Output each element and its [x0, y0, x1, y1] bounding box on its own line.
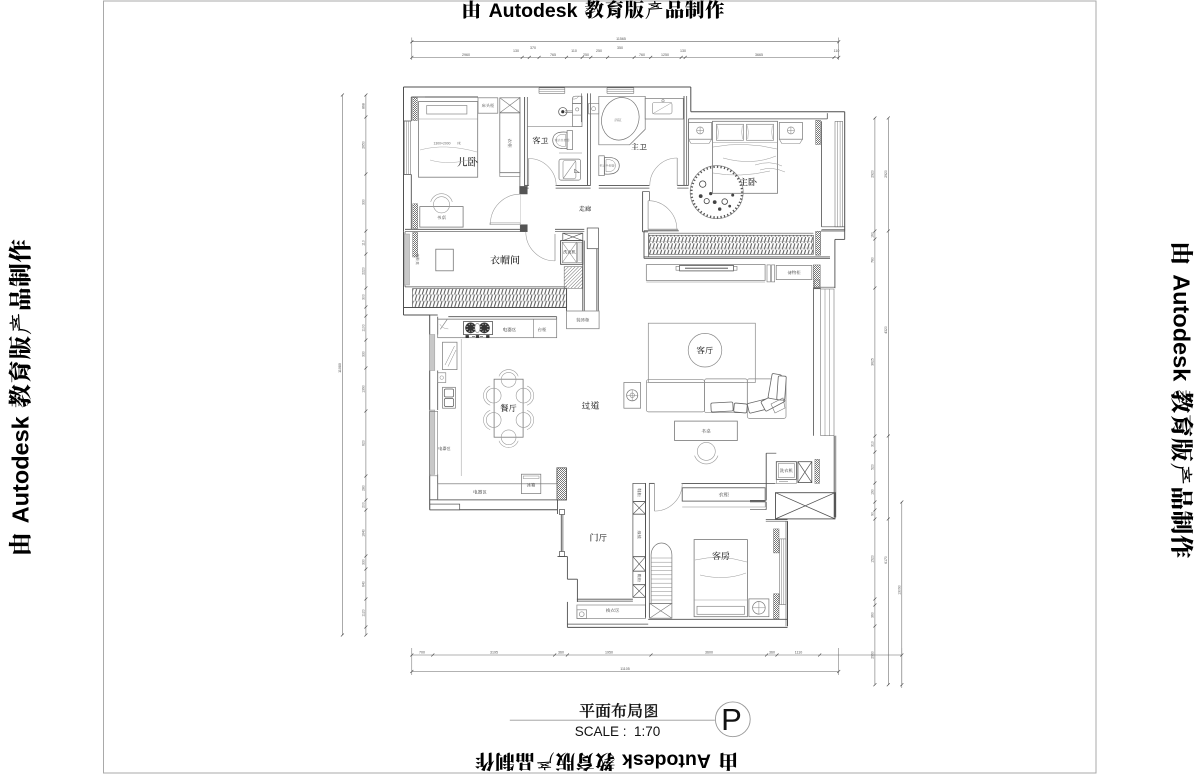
svg-text:130: 130	[513, 49, 519, 53]
svg-text:520: 520	[871, 464, 875, 470]
svg-text:3600: 3600	[705, 651, 713, 655]
svg-text:Autodesk: Autodesk	[1168, 274, 1194, 382]
svg-text:1390: 1390	[362, 385, 366, 393]
svg-text:160: 160	[871, 232, 875, 238]
svg-text:1950: 1950	[605, 651, 613, 655]
svg-text:Autodesk: Autodesk	[8, 415, 34, 523]
svg-text:360: 360	[558, 651, 564, 655]
svg-text:1110: 1110	[795, 651, 802, 655]
svg-text:3195: 3195	[490, 651, 498, 655]
svg-text:110: 110	[362, 240, 366, 246]
svg-text:190: 190	[871, 489, 875, 495]
svg-text:2650: 2650	[362, 141, 366, 149]
svg-text:11565: 11565	[616, 37, 626, 41]
svg-text:2920: 2920	[871, 170, 875, 178]
svg-text:2920: 2920	[884, 170, 888, 178]
svg-text:640: 640	[362, 581, 366, 587]
svg-text:13090: 13090	[898, 585, 902, 595]
svg-text:300: 300	[362, 294, 366, 300]
svg-text:868: 868	[362, 103, 366, 109]
svg-text:765: 765	[550, 53, 556, 57]
svg-text:310: 310	[871, 441, 875, 447]
svg-text:P: P	[721, 702, 742, 737]
svg-text:250: 250	[583, 53, 589, 57]
svg-text:Autodesk: Autodesk	[622, 750, 711, 772]
svg-text:330: 330	[362, 351, 366, 357]
svg-text:1300×2000: 1300×2000	[433, 142, 450, 146]
svg-text:90: 90	[871, 512, 875, 516]
svg-text:110: 110	[834, 49, 840, 53]
svg-text:620: 620	[362, 440, 366, 446]
svg-text:360: 360	[871, 612, 875, 618]
svg-text:1100: 1100	[362, 324, 366, 331]
svg-text:130: 130	[680, 49, 686, 53]
svg-text:3625: 3625	[871, 358, 875, 366]
svg-text:2960: 2960	[462, 53, 470, 57]
svg-text:110: 110	[571, 49, 577, 53]
svg-text:SCALE : 1:70: SCALE : 1:70	[575, 724, 661, 739]
svg-text:Autodesk: Autodesk	[489, 0, 578, 22]
svg-text:6170: 6170	[884, 556, 888, 564]
svg-text:200: 200	[362, 502, 366, 508]
svg-text:3665: 3665	[755, 53, 763, 57]
svg-text:2220: 2220	[362, 267, 366, 275]
svg-text:330: 330	[362, 559, 366, 565]
svg-text:11080: 11080	[338, 363, 342, 373]
svg-text:760: 760	[639, 53, 645, 57]
svg-text:280: 280	[362, 485, 366, 491]
svg-text:250: 250	[596, 49, 602, 53]
svg-text:330: 330	[362, 199, 366, 205]
svg-text:1250: 1250	[661, 53, 669, 57]
svg-text:1120: 1120	[362, 609, 366, 616]
svg-text:350: 350	[617, 46, 623, 50]
svg-text:1520: 1520	[871, 555, 875, 563]
svg-text:1640: 1640	[362, 529, 366, 537]
svg-text:360: 360	[769, 651, 775, 655]
svg-text:370: 370	[530, 46, 536, 50]
svg-text:4320: 4320	[884, 326, 888, 334]
svg-text:700: 700	[419, 651, 425, 655]
svg-text:11105: 11105	[620, 667, 629, 671]
svg-text:780: 780	[871, 257, 875, 263]
